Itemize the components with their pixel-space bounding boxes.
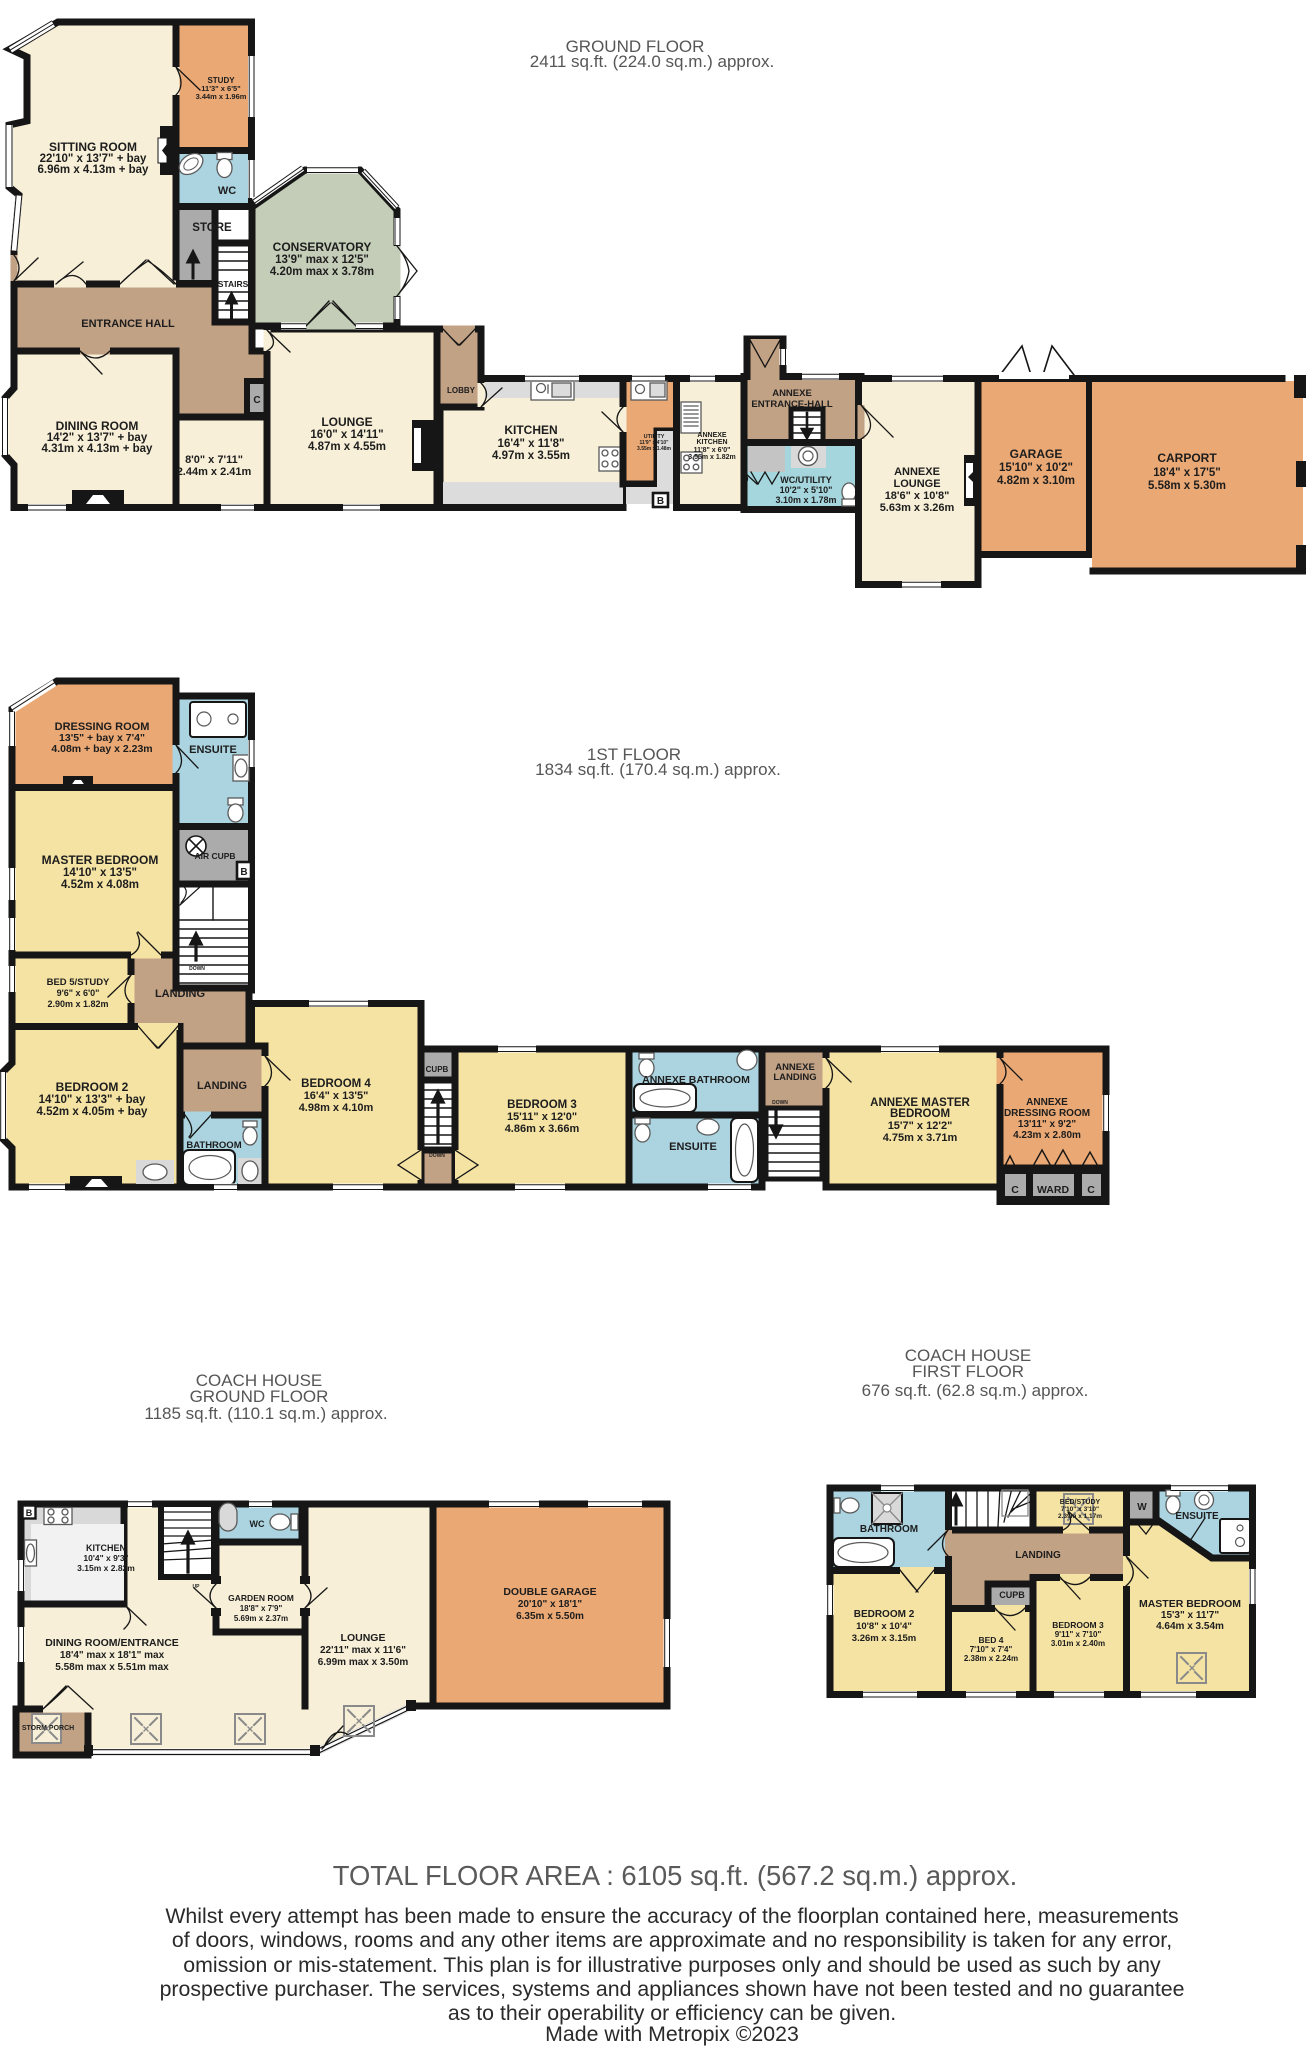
svg-text:DOUBLE GARAGE: DOUBLE GARAGE <box>503 1586 596 1598</box>
svg-text:C: C <box>1011 1184 1019 1196</box>
svg-text:16'4" x 11'8": 16'4" x 11'8" <box>498 438 565 450</box>
svg-text:676 sq.ft. (62.8 sq.m.) approx: 676 sq.ft. (62.8 sq.m.) approx. <box>862 1381 1089 1400</box>
svg-text:3.26m x 3.15m: 3.26m x 3.15m <box>852 1633 916 1644</box>
svg-text:KITCHEN: KITCHEN <box>504 423 557 437</box>
svg-text:Whilst every attempt has been: Whilst every attempt has been made to en… <box>165 1904 1178 1928</box>
svg-text:C: C <box>1087 1184 1095 1196</box>
svg-text:C: C <box>253 395 260 406</box>
svg-text:KITCHEN: KITCHEN <box>696 439 727 446</box>
svg-text:7'10" x 7'4": 7'10" x 7'4" <box>970 1645 1013 1654</box>
svg-text:4.52m x 4.05m + bay: 4.52m x 4.05m + bay <box>37 1106 149 1118</box>
svg-text:4.97m x 3.55m: 4.97m x 3.55m <box>492 450 570 462</box>
svg-text:DINING ROOM/ENTRANCE: DINING ROOM/ENTRANCE <box>45 1637 179 1649</box>
svg-text:5.58m x 5.30m: 5.58m x 5.30m <box>1148 480 1226 492</box>
svg-text:1185 sq.ft. (110.1 sq.m.) appr: 1185 sq.ft. (110.1 sq.m.) approx. <box>144 1404 387 1423</box>
svg-text:BED/STUDY: BED/STUDY <box>1060 1499 1101 1506</box>
svg-text:5.58m max x 5.51m max: 5.58m max x 5.51m max <box>55 1662 169 1673</box>
svg-text:BEDROOM 3: BEDROOM 3 <box>1052 1620 1104 1630</box>
svg-text:DOWN: DOWN <box>429 1153 445 1159</box>
svg-text:WC: WC <box>250 1519 265 1529</box>
svg-text:LANDING: LANDING <box>155 988 205 1000</box>
svg-text:16'0" x 14'11": 16'0" x 14'11" <box>310 429 383 441</box>
svg-text:4.52m x 4.08m: 4.52m x 4.08m <box>61 879 139 891</box>
svg-text:ENSUITE: ENSUITE <box>1175 1511 1219 1522</box>
svg-text:16'4" x 13'5": 16'4" x 13'5" <box>304 1090 369 1102</box>
svg-text:4.64m x 3.54m: 4.64m x 3.54m <box>1156 1621 1224 1632</box>
svg-text:ENTRANCE-HALL: ENTRANCE-HALL <box>751 399 832 410</box>
svg-text:15'11" x 12'0": 15'11" x 12'0" <box>507 1111 577 1123</box>
svg-text:LOUNGE: LOUNGE <box>341 1632 386 1644</box>
svg-text:13'9" max x 12'5": 13'9" max x 12'5" <box>275 254 369 266</box>
svg-text:KITCHEN: KITCHEN <box>86 1543 126 1553</box>
svg-text:CUPB: CUPB <box>999 1590 1025 1600</box>
svg-text:BEDROOM 2: BEDROOM 2 <box>56 1080 129 1094</box>
svg-text:B: B <box>657 496 664 507</box>
svg-text:9'6" x 6'0": 9'6" x 6'0" <box>57 988 100 998</box>
svg-text:10'4" x 9'3": 10'4" x 9'3" <box>83 1553 128 1563</box>
svg-text:6.96m x 4.13m + bay: 6.96m x 4.13m + bay <box>38 164 150 176</box>
svg-text:ANNEXE: ANNEXE <box>1026 1097 1068 1108</box>
svg-text:BATHROOM: BATHROOM <box>186 1140 241 1151</box>
svg-text:ENTRANCE HALL: ENTRANCE HALL <box>81 318 175 330</box>
svg-text:prospective purchaser. The ser: prospective purchaser. The services, sys… <box>160 1977 1185 2001</box>
svg-text:10'2" x 5'10": 10'2" x 5'10" <box>780 485 833 495</box>
svg-text:3.15m x 2.82m: 3.15m x 2.82m <box>77 1563 135 1573</box>
svg-text:8'0" x 7'11": 8'0" x 7'11" <box>185 454 243 466</box>
svg-text:BEDROOM: BEDROOM <box>890 1108 950 1120</box>
svg-text:3.55m x 1.82m: 3.55m x 1.82m <box>688 454 735 461</box>
svg-text:SITTING ROOM: SITTING ROOM <box>49 140 137 154</box>
svg-text:5.69m x 2.37m: 5.69m x 2.37m <box>234 1614 288 1623</box>
svg-text:1834 sq.ft. (170.4 sq.m.) appr: 1834 sq.ft. (170.4 sq.m.) approx. <box>535 760 781 779</box>
svg-text:4.31m x 4.13m + bay: 4.31m x 4.13m + bay <box>42 443 154 455</box>
svg-text:ANNEXE: ANNEXE <box>772 388 812 399</box>
svg-text:18'8" x 7'9": 18'8" x 7'9" <box>240 1604 283 1613</box>
svg-text:ANNEXE: ANNEXE <box>894 466 940 478</box>
svg-text:14'10" x 13'5": 14'10" x 13'5" <box>63 867 137 879</box>
svg-text:GARDEN ROOM: GARDEN ROOM <box>228 1593 294 1603</box>
svg-text:4.86m x 3.66m: 4.86m x 3.66m <box>505 1123 580 1135</box>
svg-text:2.44m x 2.41m: 2.44m x 2.41m <box>177 466 252 478</box>
svg-text:3.44m x 1.96m: 3.44m x 1.96m <box>196 92 247 101</box>
svg-text:BEDROOM 2: BEDROOM 2 <box>854 1609 915 1620</box>
svg-text:STORE: STORE <box>192 222 232 234</box>
svg-text:LANDING: LANDING <box>197 1080 247 1092</box>
svg-text:7'10" x 3'10": 7'10" x 3'10" <box>1061 1506 1099 1513</box>
svg-text:BEDROOM 4: BEDROOM 4 <box>301 1078 371 1090</box>
svg-text:2411 sq.ft. (224.0 sq.m.) appr: 2411 sq.ft. (224.0 sq.m.) approx. <box>530 52 774 71</box>
svg-text:4.82m x 3.10m: 4.82m x 3.10m <box>997 475 1075 487</box>
svg-text:18'4" x 17'5": 18'4" x 17'5" <box>1153 467 1221 479</box>
svg-text:20'10" x 18'1": 20'10" x 18'1" <box>518 1599 583 1610</box>
svg-text:omission or mis-statement. Thi: omission or mis-statement. This plan is … <box>183 1953 1161 1977</box>
svg-text:5.63m x 3.26m: 5.63m x 3.26m <box>880 502 955 514</box>
svg-text:DOWN: DOWN <box>189 966 205 972</box>
svg-text:B: B <box>26 1508 33 1518</box>
svg-text:LOUNGE: LOUNGE <box>893 478 940 490</box>
svg-text:LOBBY: LOBBY <box>447 386 476 395</box>
svg-text:GARAGE: GARAGE <box>1010 447 1063 461</box>
svg-text:W: W <box>1137 1502 1147 1513</box>
svg-text:9'11" x 7'10": 9'11" x 7'10" <box>1055 1630 1102 1639</box>
svg-text:CONSERVATORY: CONSERVATORY <box>273 240 372 254</box>
svg-text:3.55m x 1.48m: 3.55m x 1.48m <box>637 446 671 452</box>
svg-text:LANDING: LANDING <box>1015 1550 1061 1561</box>
svg-text:ENSUITE: ENSUITE <box>189 744 237 756</box>
svg-text:3.01m x 2.40m: 3.01m x 2.40m <box>1051 1639 1105 1648</box>
svg-text:15'7" x 12'2": 15'7" x 12'2" <box>888 1120 953 1132</box>
svg-text:2.90m x 1.82m: 2.90m x 1.82m <box>47 999 108 1009</box>
svg-text:4.20m max x 3.78m: 4.20m max x 3.78m <box>270 266 374 278</box>
svg-text:BED 5/STUDY: BED 5/STUDY <box>47 977 110 988</box>
svg-text:LOUNGE: LOUNGE <box>321 415 372 429</box>
svg-text:WC: WC <box>218 185 236 197</box>
svg-text:MASTER BEDROOM: MASTER BEDROOM <box>42 853 159 867</box>
svg-text:6.99m max x 3.50m: 6.99m max x 3.50m <box>318 1657 409 1668</box>
svg-text:DINING ROOM: DINING ROOM <box>56 419 139 433</box>
svg-text:4.23m x 2.80m: 4.23m x 2.80m <box>1013 1130 1081 1141</box>
svg-text:TOTAL FLOOR AREA : 6105 sq.ft.: TOTAL FLOOR AREA : 6105 sq.ft. (567.2 sq… <box>333 1860 1018 1891</box>
svg-text:of doors, windows, rooms and a: of doors, windows, rooms and any other i… <box>172 1928 1172 1952</box>
svg-text:WC/UTILITY: WC/UTILITY <box>780 475 832 485</box>
svg-text:B: B <box>240 867 247 878</box>
svg-text:ANNEXE: ANNEXE <box>697 432 727 439</box>
svg-text:AIR CUPB: AIR CUPB <box>194 851 235 861</box>
svg-text:18'4" max x 18'1" max: 18'4" max x 18'1" max <box>60 1650 165 1661</box>
svg-text:15'10" x 10'2": 15'10" x 10'2" <box>999 462 1073 474</box>
svg-text:WARD: WARD <box>1037 1184 1069 1196</box>
svg-text:15'3" x 11'7": 15'3" x 11'7" <box>1161 1610 1219 1621</box>
svg-text:BEDROOM 3: BEDROOM 3 <box>507 1099 577 1111</box>
svg-text:DRESSING ROOM: DRESSING ROOM <box>1004 1108 1090 1119</box>
svg-text:ENSUITE: ENSUITE <box>669 1141 717 1153</box>
svg-text:STORM PORCH: STORM PORCH <box>22 1725 74 1732</box>
svg-text:FIRST FLOOR: FIRST FLOOR <box>912 1362 1024 1381</box>
svg-text:13'11" x 9'2": 13'11" x 9'2" <box>1018 1119 1076 1130</box>
svg-text:11'8" x 6'0": 11'8" x 6'0" <box>694 447 731 454</box>
svg-text:ANNEXE BATHROOM: ANNEXE BATHROOM <box>642 1074 750 1086</box>
svg-text:18'6" x 10'8": 18'6" x 10'8" <box>885 490 950 502</box>
svg-text:LANDING: LANDING <box>773 1072 816 1083</box>
svg-text:6.35m x 5.50m: 6.35m x 5.50m <box>516 1611 584 1622</box>
svg-text:DOWN: DOWN <box>772 1100 788 1106</box>
svg-text:UP: UP <box>193 1584 201 1590</box>
svg-text:3.10m x 1.78m: 3.10m x 1.78m <box>775 495 836 505</box>
svg-text:14'10" x 13'3" + bay: 14'10" x 13'3" + bay <box>39 1094 146 1106</box>
svg-text:BATHROOM: BATHROOM <box>860 1524 918 1535</box>
svg-text:CUPB: CUPB <box>426 1065 449 1074</box>
svg-text:2.38m x 2.24m: 2.38m x 2.24m <box>964 1654 1018 1663</box>
svg-text:CARPORT: CARPORT <box>1157 451 1217 465</box>
svg-text:BED 4: BED 4 <box>978 1635 1003 1645</box>
svg-text:STAIRS: STAIRS <box>218 279 249 289</box>
svg-text:22'11" max x 11'6": 22'11" max x 11'6" <box>320 1645 406 1656</box>
svg-text:4.98m x 4.10m: 4.98m x 4.10m <box>299 1102 374 1114</box>
svg-text:2.39m x 1.17m: 2.39m x 1.17m <box>1058 1513 1102 1520</box>
svg-text:4.08m + bay x 2.23m: 4.08m + bay x 2.23m <box>51 743 152 755</box>
svg-text:Made with Metropix ©2023: Made with Metropix ©2023 <box>545 2022 799 2046</box>
svg-text:10'8" x 10'4": 10'8" x 10'4" <box>856 1621 912 1632</box>
svg-text:MASTER BEDROOM: MASTER BEDROOM <box>1139 1598 1241 1610</box>
svg-text:4.87m x 4.55m: 4.87m x 4.55m <box>308 441 386 453</box>
svg-text:4.75m x 3.71m: 4.75m x 3.71m <box>883 1132 958 1144</box>
